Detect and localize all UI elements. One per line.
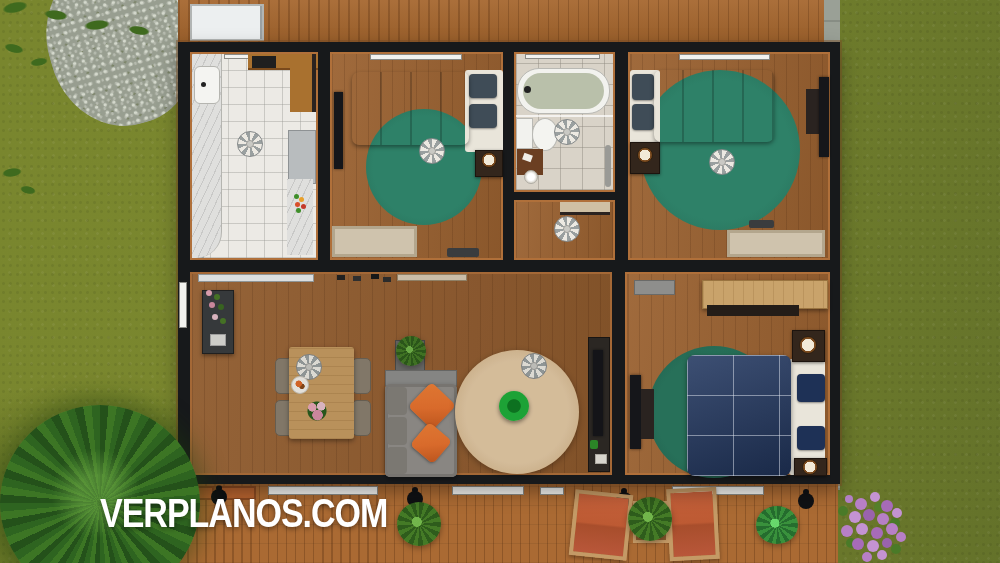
wall-shelf — [634, 280, 675, 295]
back-deck — [178, 0, 824, 42]
pillow — [797, 374, 825, 402]
hallway — [514, 200, 615, 260]
bathroom — [514, 52, 615, 192]
living-window — [179, 282, 187, 328]
ceiling-fan — [554, 216, 580, 242]
ceiling-fan — [709, 149, 735, 175]
flower-vase — [304, 398, 330, 424]
sofa-cushion — [387, 417, 407, 445]
house — [178, 42, 840, 484]
clock — [802, 459, 818, 475]
kitchen-counter-right — [287, 179, 313, 255]
sofa — [385, 384, 457, 477]
clock — [799, 336, 817, 354]
console-plant — [590, 440, 598, 449]
kitchen — [190, 52, 318, 260]
media-shelf — [641, 389, 654, 439]
towel-rail — [605, 145, 611, 187]
wall-tv — [334, 92, 343, 169]
fruit-bowl — [294, 194, 299, 199]
door-mat — [749, 220, 774, 228]
outdoor-cabinet — [190, 4, 264, 41]
sofa-cushion — [387, 387, 407, 415]
dining-chair — [352, 358, 371, 394]
window-sill — [540, 487, 564, 495]
pass-through-counter — [198, 274, 314, 282]
tall-cabinet — [290, 54, 316, 112]
ceiling-fan — [419, 138, 445, 164]
sideboard-flowers — [206, 290, 212, 296]
dinner-plate — [291, 376, 309, 394]
shoes-by-door — [337, 275, 345, 280]
kitchen-island — [288, 130, 316, 184]
pillow — [632, 104, 654, 130]
faucet — [201, 82, 206, 87]
orange-cushion — [410, 422, 452, 464]
bench — [332, 226, 417, 257]
bedroom-window — [679, 54, 770, 60]
ceiling-fan — [554, 119, 580, 145]
sofa-cushion — [387, 447, 407, 474]
bedroom-bottom-right — [625, 272, 830, 475]
television — [593, 350, 603, 436]
floor-plan-scene: VERPLANOS.COM — [0, 0, 1000, 563]
orange-cushion — [408, 382, 456, 430]
ceiling-fan — [521, 353, 547, 379]
living-dining-room — [190, 272, 612, 475]
pillow — [469, 74, 497, 98]
bed-duvet — [352, 72, 469, 145]
ceiling-fan — [237, 131, 263, 157]
bedroom-top-left — [330, 52, 503, 260]
dresser-shelf — [707, 305, 799, 316]
clock — [637, 147, 653, 163]
console-papers — [595, 454, 607, 464]
kitchen-sink — [194, 66, 220, 104]
wall-lamp — [798, 493, 814, 509]
media-shelf — [806, 89, 820, 134]
glass-divider — [516, 115, 613, 117]
wall-tv — [819, 77, 829, 157]
coffee-table — [499, 391, 529, 421]
toilet-tank — [516, 118, 533, 149]
purple-flower-bush — [845, 495, 853, 503]
tub-faucet — [524, 86, 531, 93]
door-leaf — [397, 274, 467, 281]
sideboard-tray — [210, 334, 226, 346]
potted-plant — [397, 502, 441, 546]
bed-duvet — [687, 355, 791, 476]
window-sill — [452, 486, 524, 495]
deck-bush — [756, 506, 798, 544]
clock — [481, 152, 497, 168]
stove — [252, 56, 276, 68]
wall-tv — [630, 375, 641, 449]
sun-lounger — [569, 489, 634, 561]
sun-lounger — [666, 487, 720, 562]
pillow — [469, 104, 497, 128]
bathtub-water — [523, 73, 604, 109]
bedroom-window — [370, 54, 462, 60]
pillow — [797, 426, 825, 450]
pillow — [632, 74, 654, 100]
hall-shelf — [560, 202, 610, 215]
watermark: VERPLANOS.COM — [100, 490, 387, 536]
dining-chair — [352, 400, 371, 436]
bed-duvet — [654, 70, 774, 142]
potted-plant — [396, 336, 426, 366]
bathroom-window — [525, 54, 600, 59]
toilet-paper-roll — [524, 170, 538, 184]
bench — [727, 230, 825, 257]
door-mat — [447, 248, 479, 257]
planter-plant — [628, 497, 672, 541]
bedroom-top-right — [628, 52, 830, 260]
